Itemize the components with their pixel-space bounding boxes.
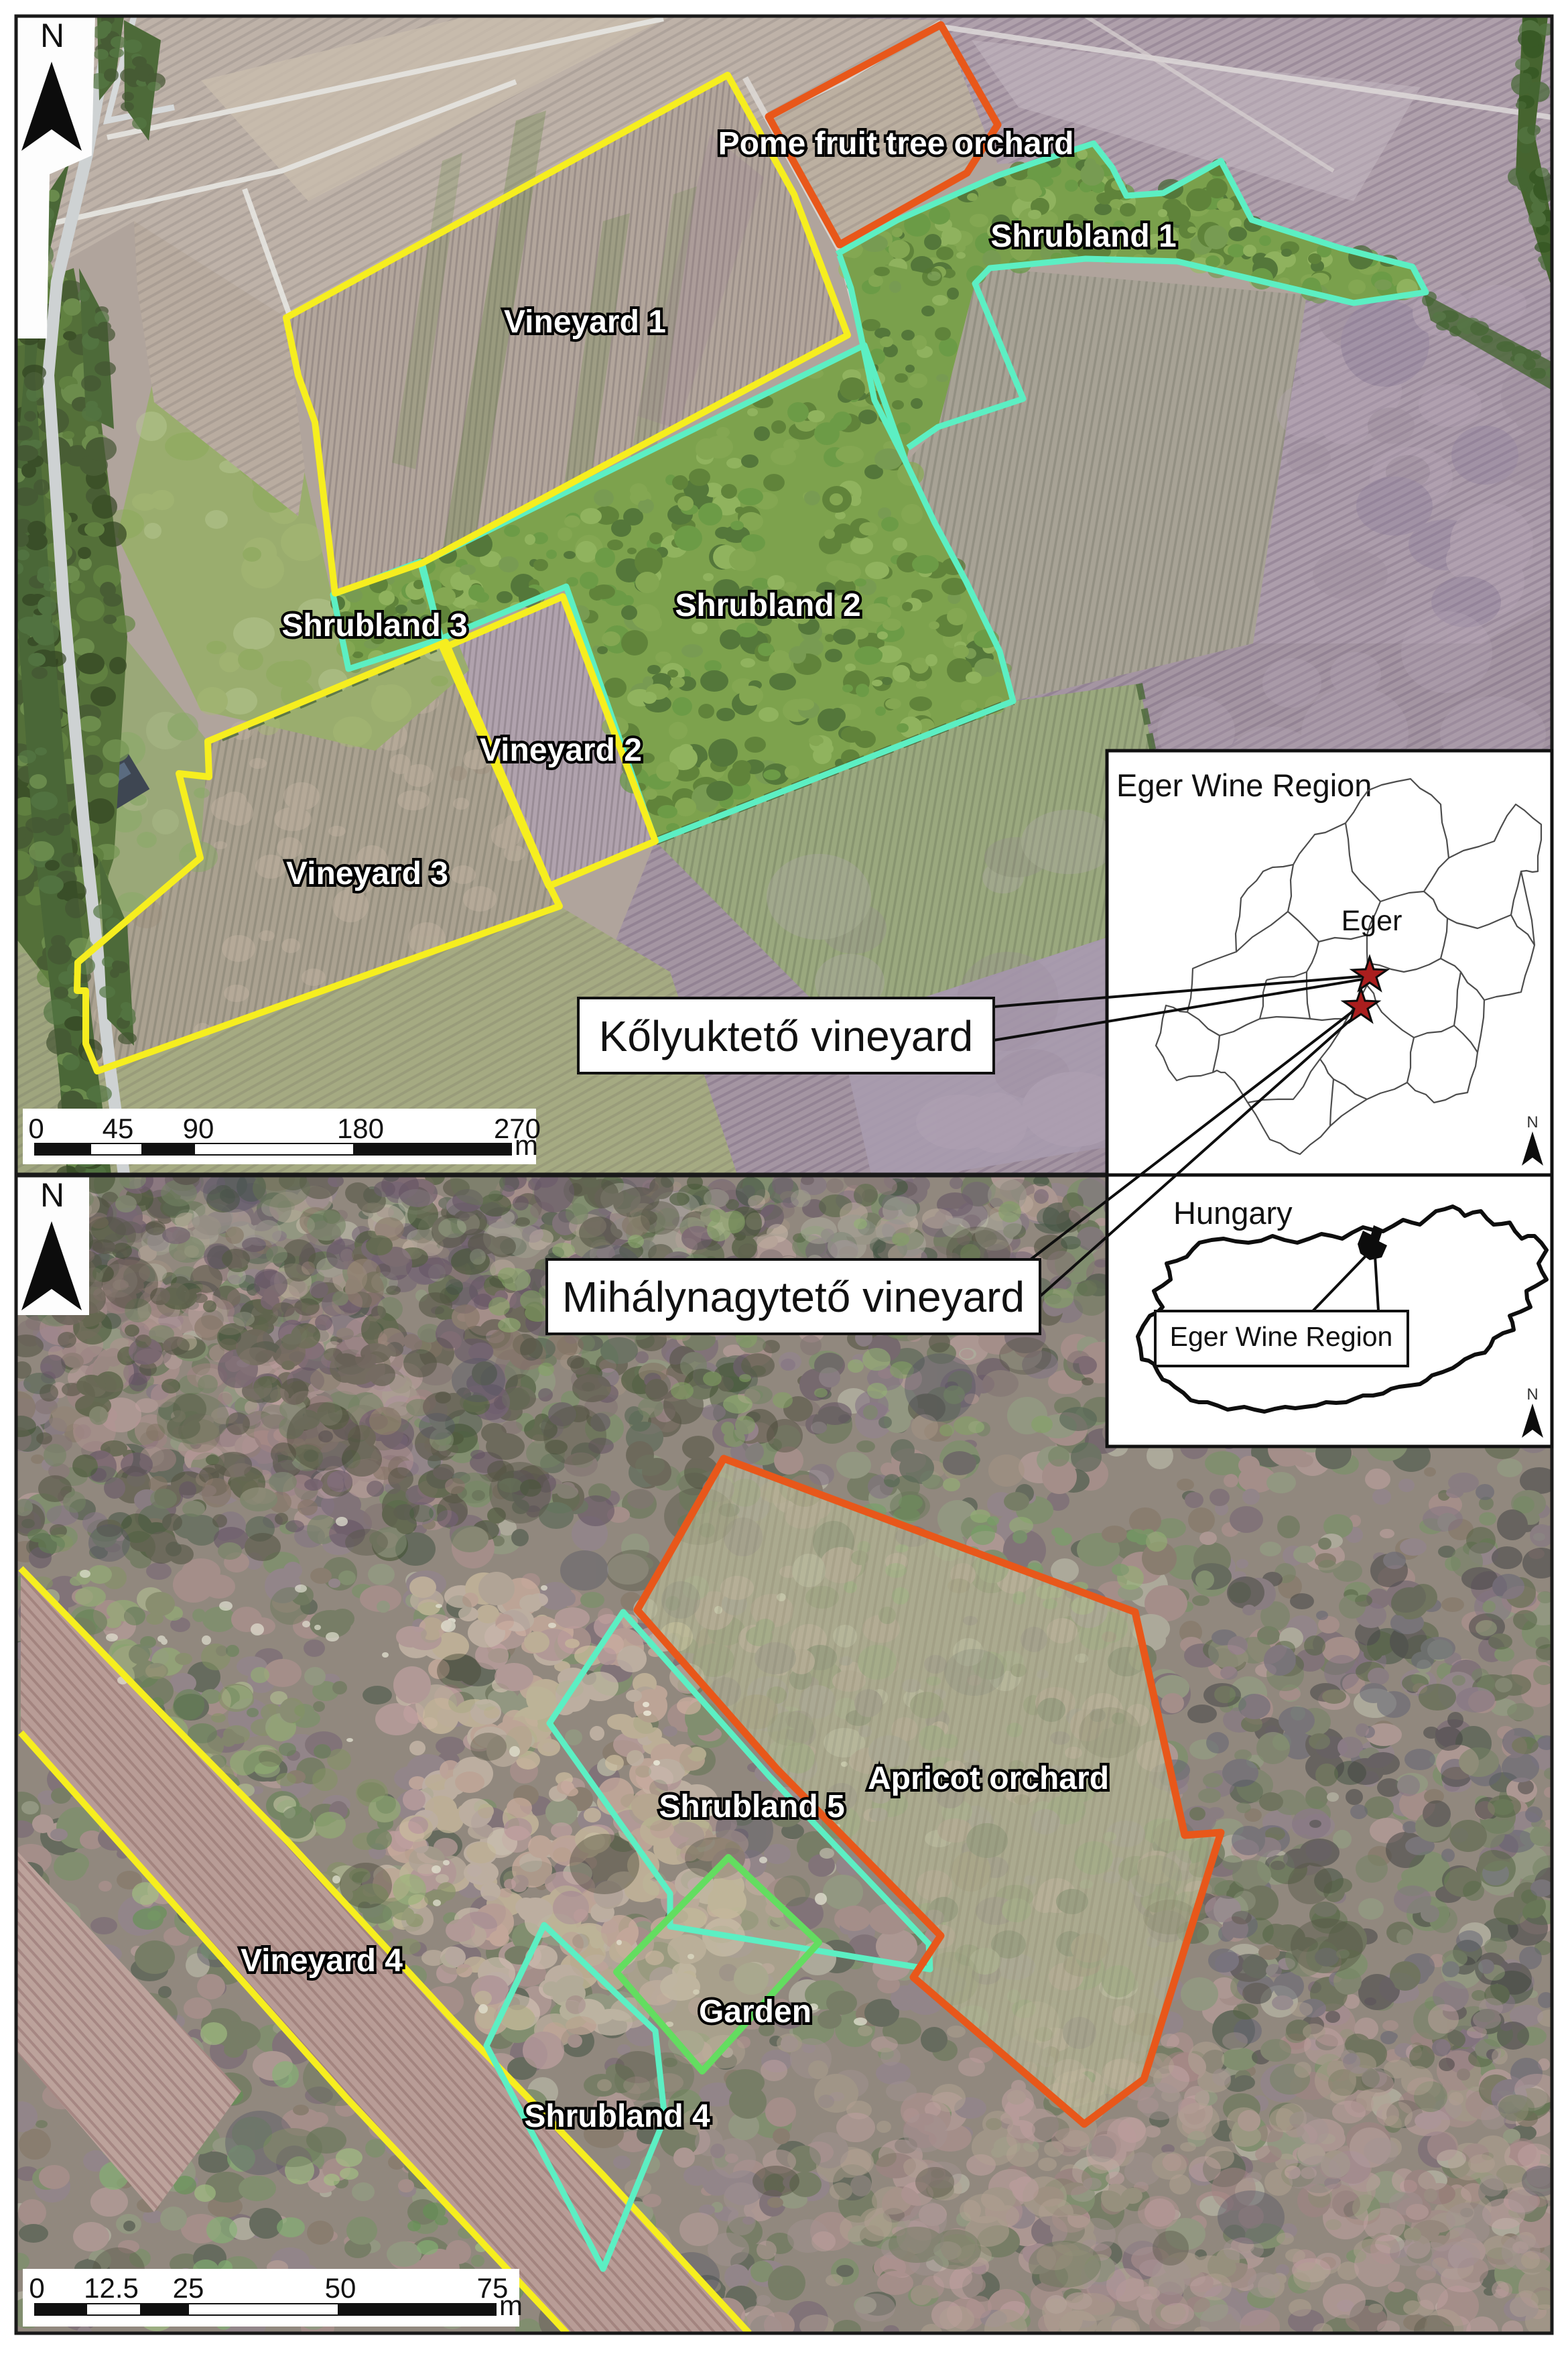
svg-text:90: 90 bbox=[183, 1113, 214, 1144]
svg-text:180: 180 bbox=[337, 1113, 384, 1144]
svg-text:Shrubland 2: Shrubland 2 bbox=[675, 588, 860, 623]
svg-text:m: m bbox=[515, 1129, 538, 1161]
svg-text:Vineyard 1: Vineyard 1 bbox=[504, 304, 666, 340]
svg-text:Shrubland 1: Shrubland 1 bbox=[990, 219, 1176, 254]
svg-text:0: 0 bbox=[28, 1113, 44, 1144]
svg-text:45: 45 bbox=[103, 1113, 134, 1144]
svg-text:Shrubland 3: Shrubland 3 bbox=[281, 608, 467, 643]
svg-text:N: N bbox=[40, 17, 64, 54]
svg-text:Vineyard 2: Vineyard 2 bbox=[480, 733, 642, 768]
svg-text:Vineyard 3: Vineyard 3 bbox=[286, 856, 448, 891]
svg-text:Pome fruit tree orchard: Pome fruit tree orchard bbox=[718, 126, 1074, 162]
